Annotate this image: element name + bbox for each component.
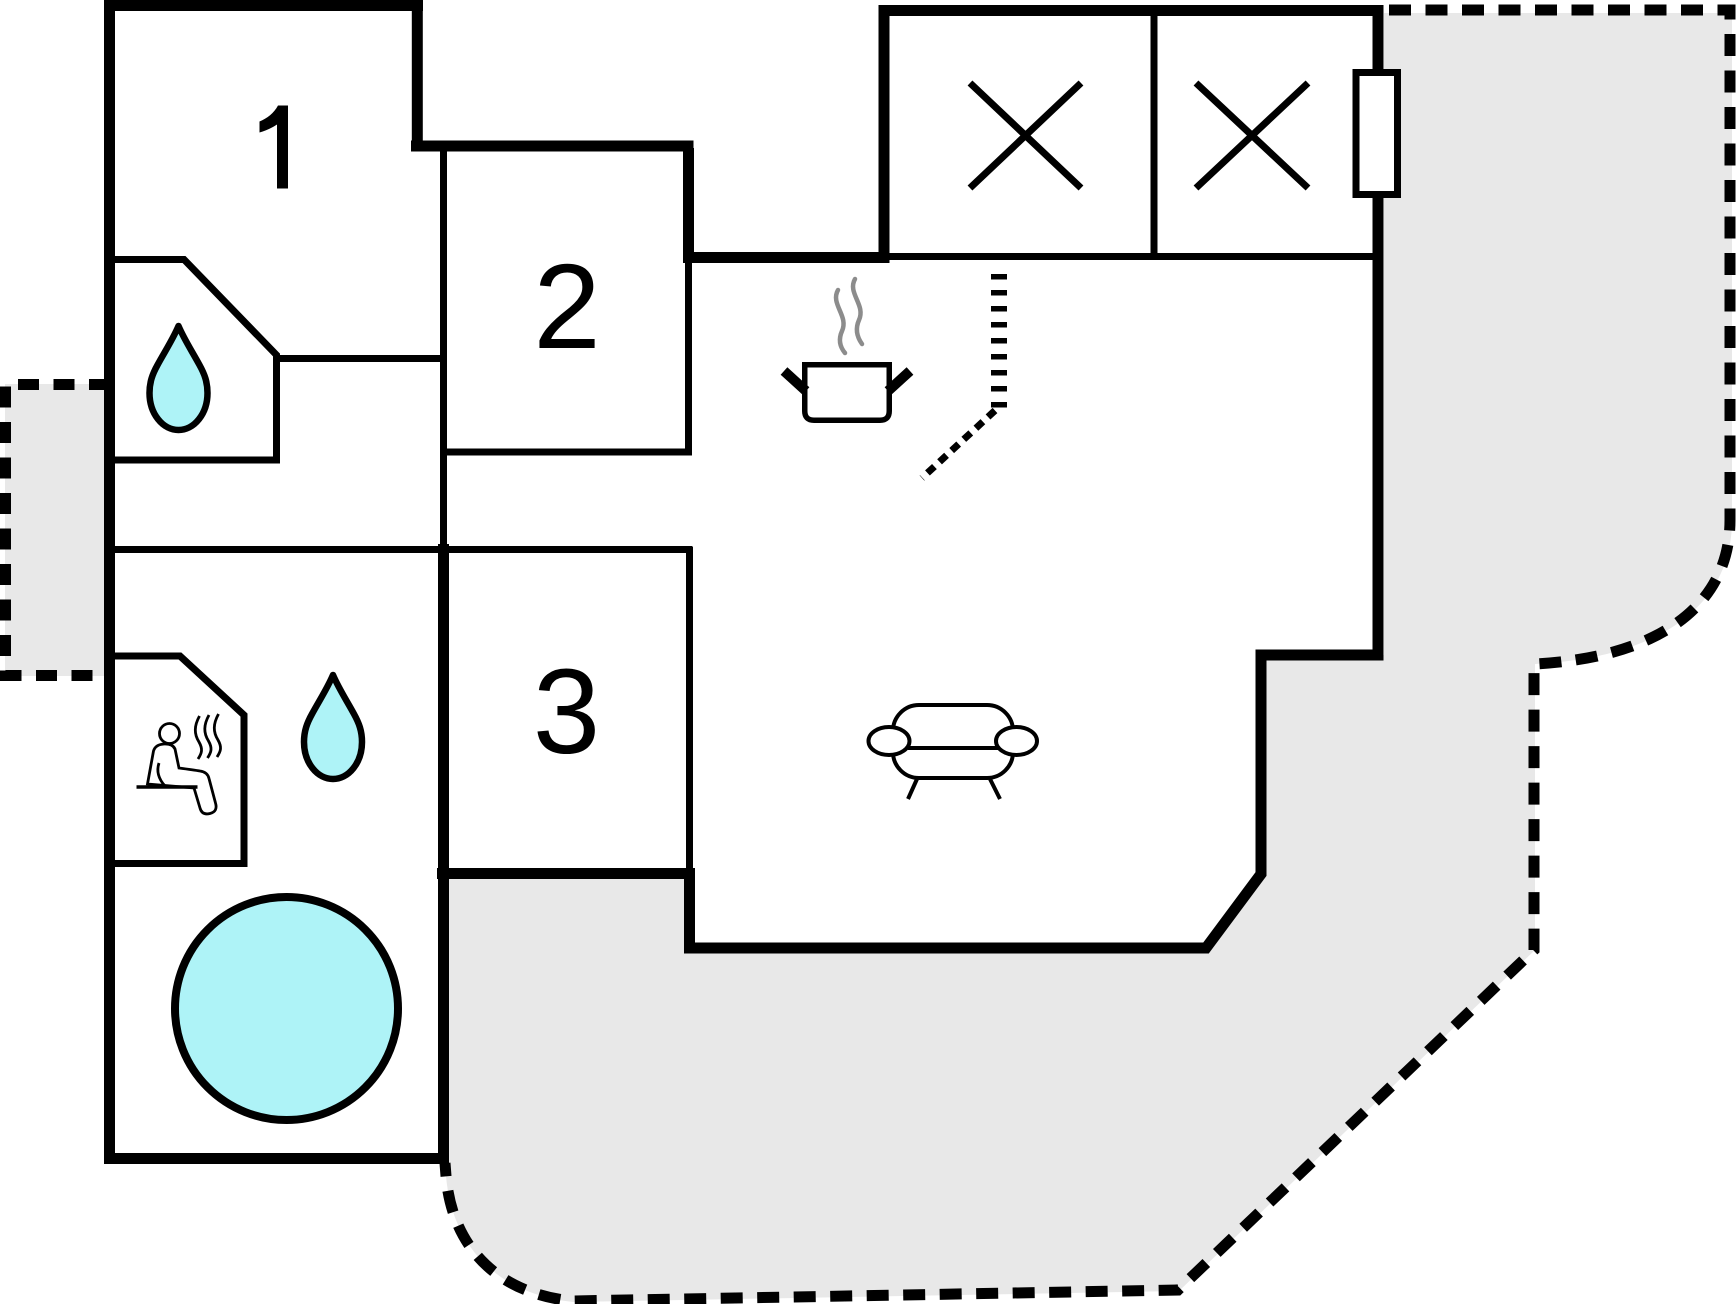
svg-text:2: 2 <box>533 238 600 374</box>
svg-text:3: 3 <box>533 643 600 779</box>
